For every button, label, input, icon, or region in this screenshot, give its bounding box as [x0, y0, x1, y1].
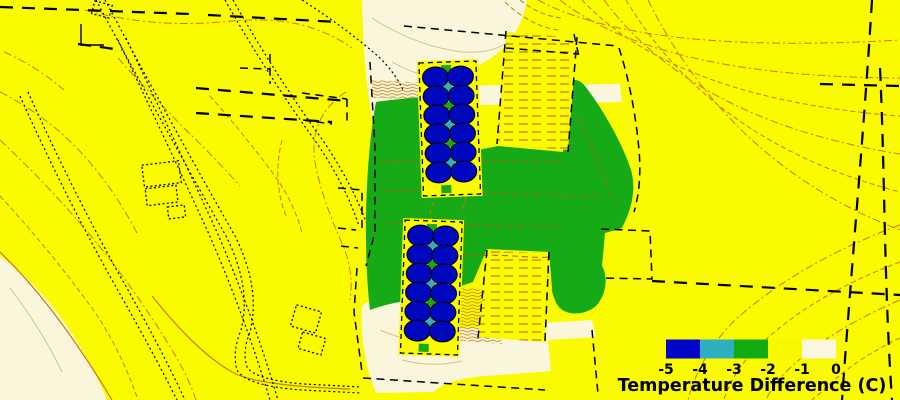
tree-symbol	[423, 104, 450, 126]
tree-symbol	[424, 123, 451, 145]
tree-symbol	[430, 301, 457, 323]
tree-symbol	[405, 301, 432, 323]
tree-symbol	[450, 161, 477, 183]
tree-symbol	[425, 161, 452, 183]
legend-swatch-minus5	[666, 340, 700, 359]
tree-symbol	[448, 104, 475, 126]
tree-symbol	[404, 320, 431, 342]
south-tree-cluster	[398, 218, 464, 357]
tree-symbol	[425, 142, 452, 164]
tree-symbol	[407, 244, 434, 266]
tree-symbol	[423, 85, 450, 107]
tree-symbol	[429, 320, 456, 342]
hatched-field-lower	[478, 251, 549, 342]
map-canvas: -5 -4 -3 -2 -1 0 Temperature Difference …	[0, 0, 900, 400]
hatched-field-upper	[497, 32, 577, 150]
tree-symbol	[448, 85, 475, 107]
tree-symbol	[447, 66, 474, 88]
tree-symbol	[406, 263, 433, 285]
legend-swatch-minus1	[802, 340, 836, 359]
tree-symbol	[450, 142, 477, 164]
tree-symbol	[422, 66, 449, 88]
tree-symbol	[432, 226, 459, 248]
tree-symbol	[405, 282, 432, 304]
temperature-difference-map: -5 -4 -3 -2 -1 0 Temperature Difference …	[0, 0, 900, 400]
north-tree-cluster	[417, 59, 483, 198]
tree-symbol	[407, 225, 434, 247]
legend-title: Temperature Difference (C)	[618, 376, 887, 396]
legend-swatch-minus4	[700, 340, 734, 359]
tree-symbol	[449, 123, 476, 145]
tree-symbol	[432, 245, 459, 267]
tree-symbol	[430, 282, 457, 304]
legend-swatch-minus2	[768, 340, 802, 359]
tree-symbol	[431, 264, 458, 286]
legend-swatch-minus3	[734, 340, 768, 359]
